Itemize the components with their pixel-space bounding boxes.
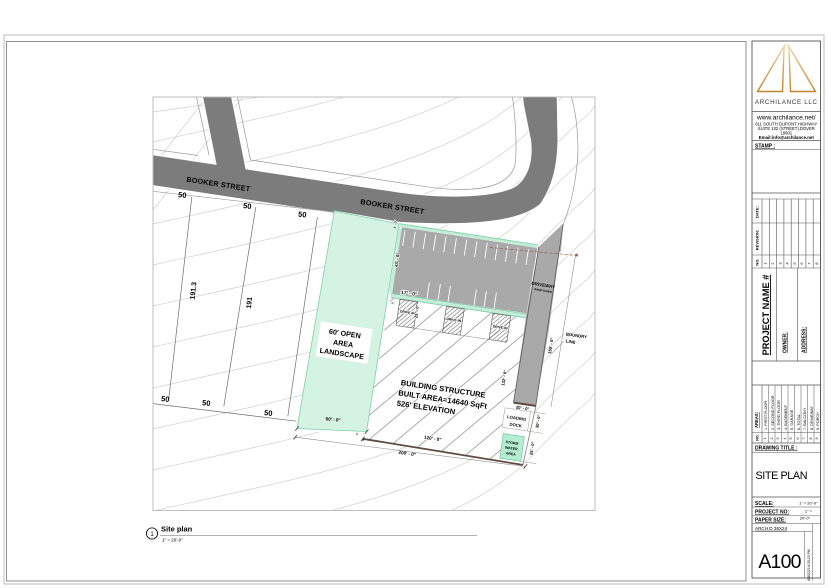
svg-text:2: 2 xyxy=(770,438,774,440)
svg-text:50: 50 xyxy=(298,210,307,220)
svg-text:8/8/2025 6:25:23 PM: 8/8/2025 6:25:23 PM xyxy=(807,549,811,581)
svg-text:6. TOTAL: 6. TOTAL xyxy=(797,414,801,430)
svg-text:REVISION:: REVISION: xyxy=(755,230,760,250)
svg-text:50: 50 xyxy=(243,201,252,211)
svg-text:1. FIRST FLOOR: 1. FIRST FLOOR xyxy=(764,400,768,430)
svg-text:ARCH D 36X24: ARCH D 36X24 xyxy=(755,526,788,531)
svg-text:PAPER SIZE:: PAPER SIZE: xyxy=(755,518,786,524)
svg-text:A100: A100 xyxy=(758,551,801,573)
svg-text:6: 6 xyxy=(796,438,800,440)
svg-text:www.archilance.net/: www.archilance.net/ xyxy=(756,115,816,122)
svg-text:STAMP :: STAMP : xyxy=(755,144,775,150)
svg-text:ARCHILANCE LLC: ARCHILANCE LLC xyxy=(755,99,818,106)
svg-text:DATE:: DATE: xyxy=(755,206,760,218)
svg-text:7: 7 xyxy=(802,438,806,440)
svg-text:4. BASEMENT: 4. BASEMENT xyxy=(784,404,788,430)
svg-text:191: 191 xyxy=(246,297,254,309)
svg-text:50: 50 xyxy=(161,394,170,404)
svg-text:AREAS:: AREAS: xyxy=(754,412,759,428)
svg-text:3: 3 xyxy=(776,438,780,440)
svg-text:SCALE:: SCALE: xyxy=(755,501,774,507)
svg-text:3. THIRD FLOOR: 3. THIRD FLOOR xyxy=(777,400,781,430)
svg-text:PROJECT NO:: PROJECT NO: xyxy=(755,510,790,516)
svg-text:NO.: NO. xyxy=(755,258,760,265)
svg-text:1" =: 1" = xyxy=(805,509,813,514)
svg-text:ADDRESS:: ADDRESS: xyxy=(801,327,807,353)
svg-text:Site plan: Site plan xyxy=(161,525,193,534)
svg-text:SITE PLAN: SITE PLAN xyxy=(756,470,808,482)
svg-text:9. PORCH: 9. PORCH xyxy=(816,412,820,430)
svg-text:8. DRIVEWAY: 8. DRIVEWAY xyxy=(810,405,814,430)
svg-text:Email:info@archilance.net: Email:info@archilance.net xyxy=(759,135,815,140)
svg-text:2. SECOND FLOOR: 2. SECOND FLOOR xyxy=(771,395,775,430)
svg-text:8: 8 xyxy=(809,438,813,440)
svg-text:20'-0": 20'-0" xyxy=(800,516,811,521)
svg-text:50: 50 xyxy=(202,398,211,408)
svg-text:50: 50 xyxy=(264,408,273,418)
svg-text:5: 5 xyxy=(789,438,793,440)
svg-text:9: 9 xyxy=(815,438,819,440)
svg-text:OWNER:: OWNER: xyxy=(782,332,788,353)
svg-text:NO.: NO. xyxy=(756,434,760,440)
svg-text:7. BALCONY: 7. BALCONY xyxy=(803,407,807,430)
svg-text:1" = 20'-0": 1" = 20'-0" xyxy=(162,538,183,543)
svg-text:PROJECT NAME #: PROJECT NAME # xyxy=(761,275,771,356)
svg-text:1" = 20'-0": 1" = 20'-0" xyxy=(799,501,818,506)
svg-text:50: 50 xyxy=(178,190,187,200)
svg-text:DRAWING TITLE :: DRAWING TITLE : xyxy=(755,446,798,452)
svg-text:4: 4 xyxy=(783,438,787,440)
svg-text:1: 1 xyxy=(763,438,767,440)
svg-text:5. GARAGE: 5. GARAGE xyxy=(790,409,794,430)
